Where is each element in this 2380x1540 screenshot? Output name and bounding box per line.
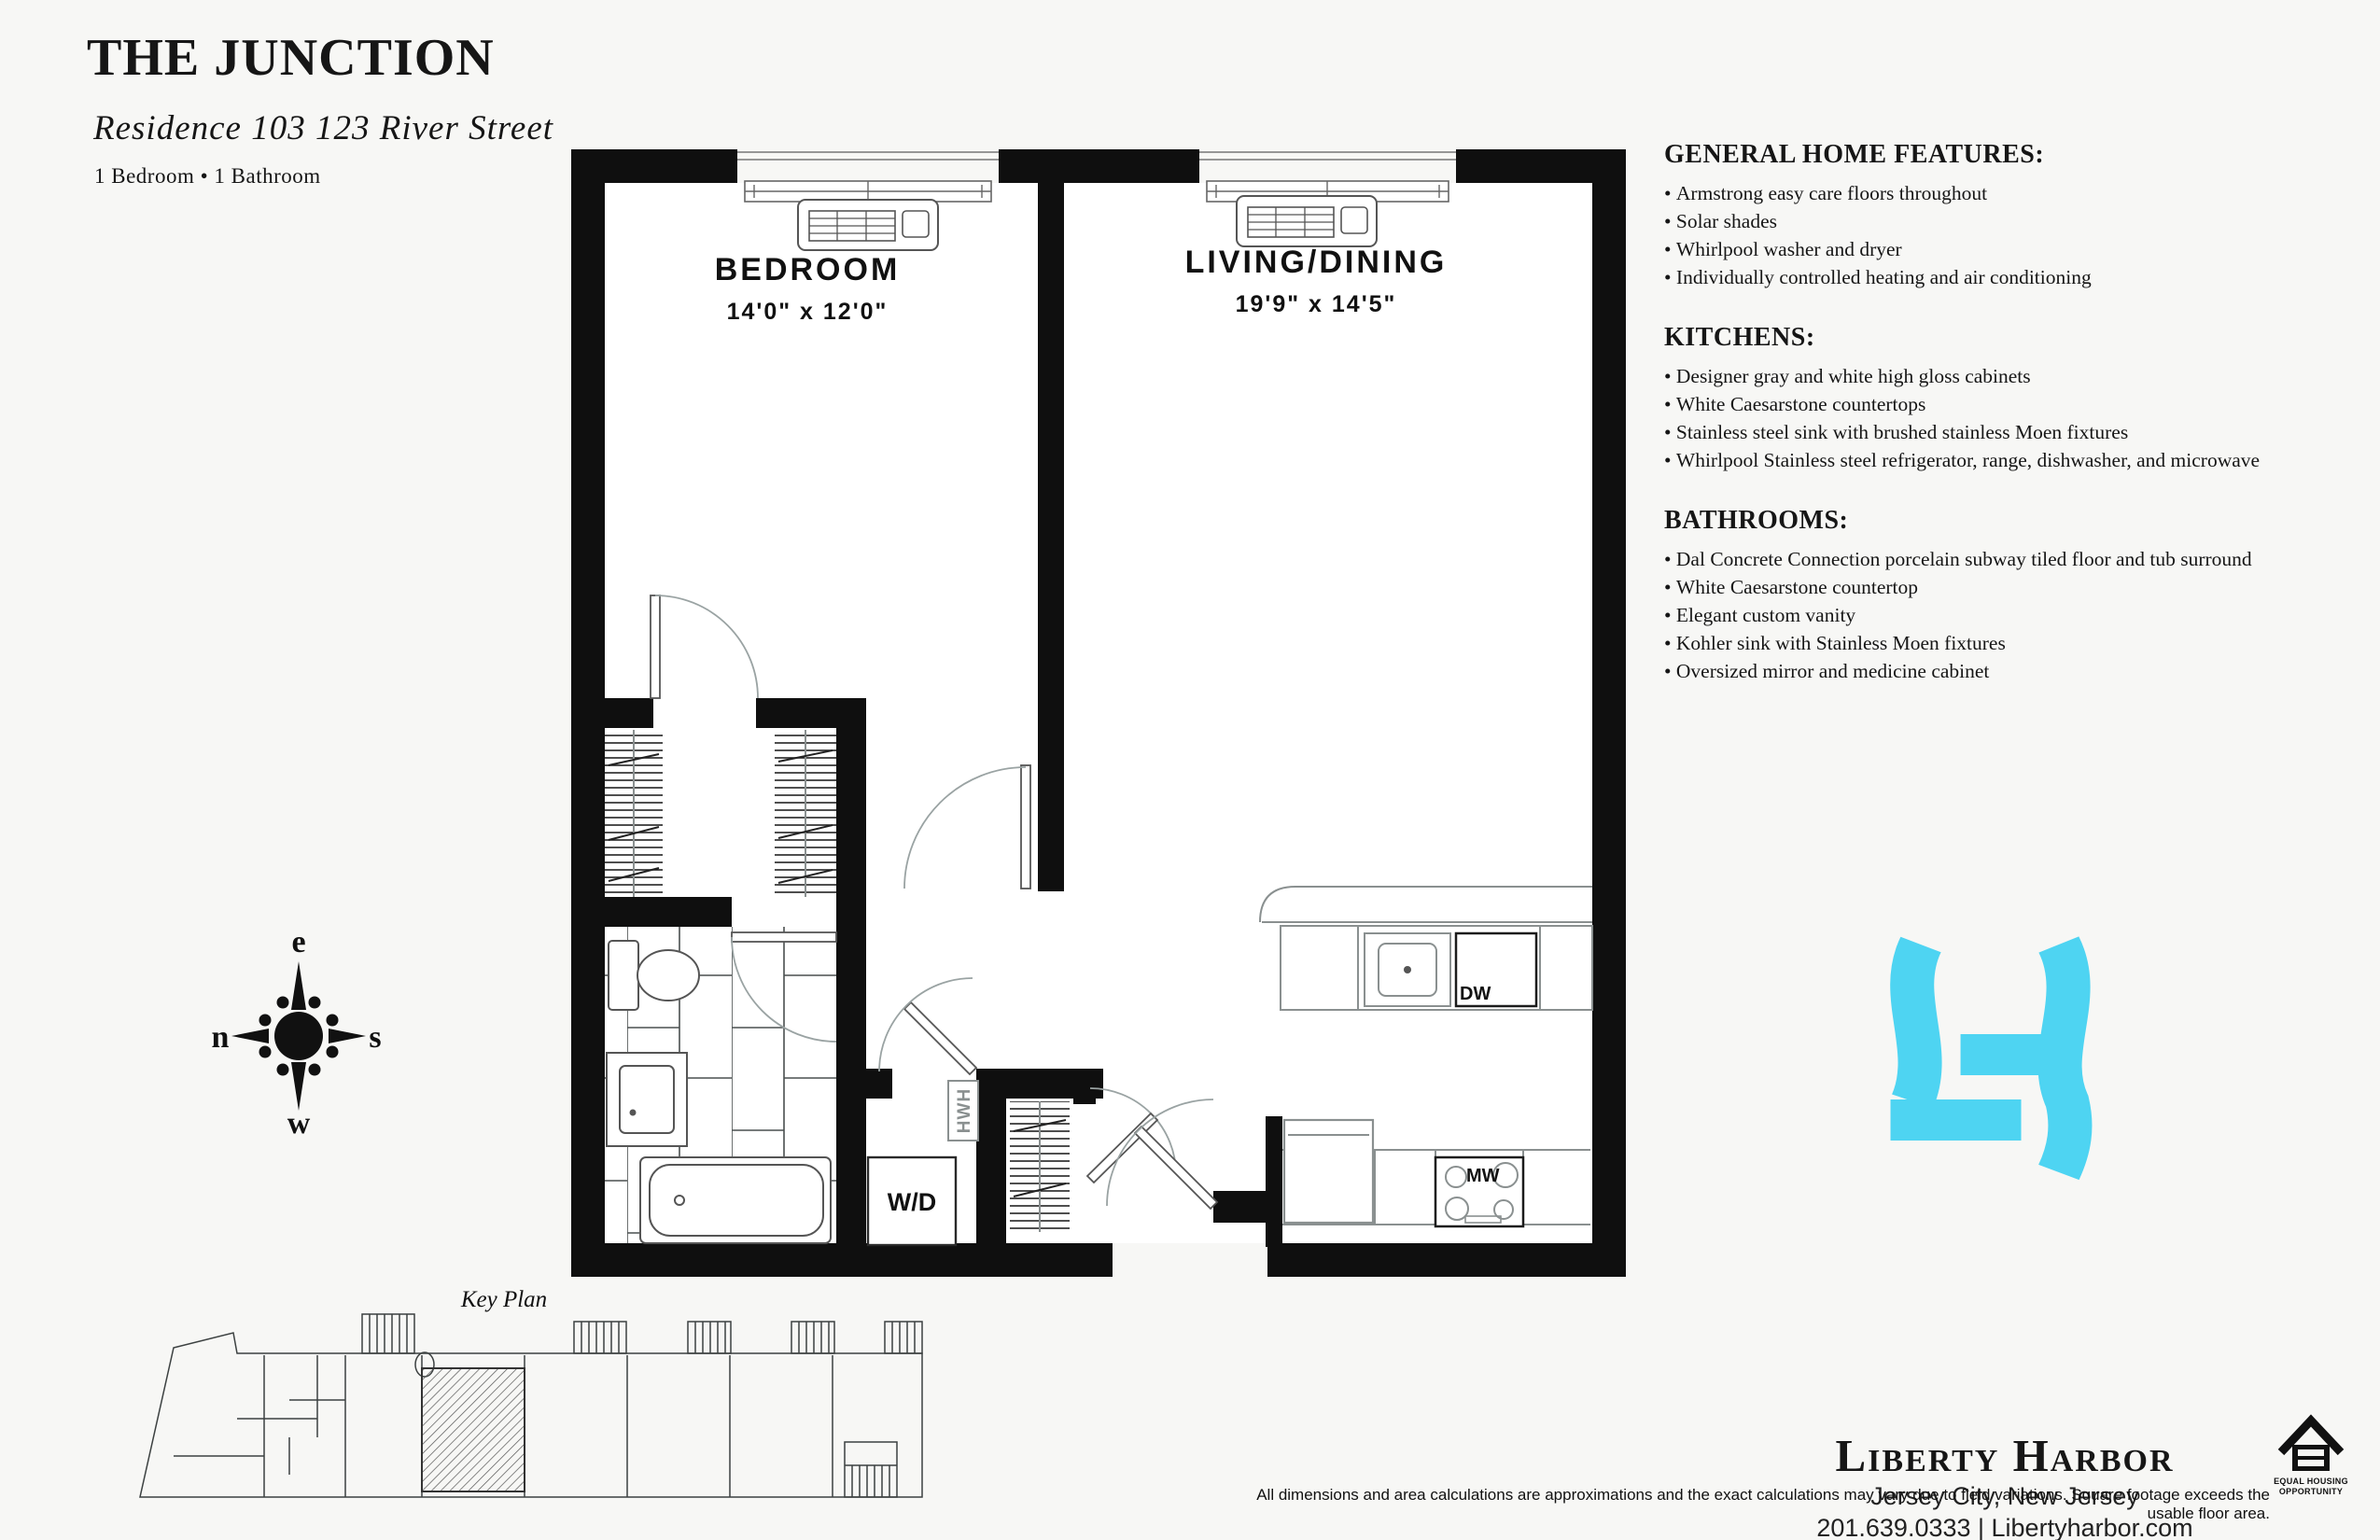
range: MW — [1435, 1157, 1523, 1226]
compass-s: s — [369, 1020, 381, 1055]
drawings-layer: HWH W/D DW — [0, 0, 2380, 1540]
vanity-sink — [607, 1053, 687, 1146]
key-plan-label: Key Plan — [460, 1287, 547, 1312]
dishwasher: DW — [1456, 933, 1536, 1006]
living-ptac-unit — [1237, 196, 1377, 246]
refrigerator — [1284, 1120, 1373, 1223]
compass-rose: e n s w — [212, 925, 382, 1141]
hwh-label: HWH — [955, 1088, 974, 1133]
mw-label: MW — [1466, 1166, 1500, 1186]
bedroom-window — [737, 152, 999, 202]
hot-water-heater: HWH — [948, 1081, 978, 1141]
equal-housing-logo: EQUAL HOUSING OPPORTUNITY — [2274, 1421, 2348, 1496]
bathtub — [640, 1157, 831, 1243]
floorplan-sheet: THE JUNCTION Residence 103 123 River Str… — [0, 0, 2380, 1540]
bedroom-dims: 14'0" x 12'0" — [727, 299, 889, 325]
eho-line1: EQUAL HOUSING — [2274, 1477, 2348, 1486]
living-window — [1199, 152, 1456, 202]
unit-floor-plan: HWH W/D DW — [571, 149, 1626, 1277]
bedroom-ptac-unit — [798, 200, 938, 250]
liberty-harbor-logo — [1891, 945, 2070, 1172]
keyplan-highlighted-unit — [422, 1368, 525, 1491]
compass-e: e — [291, 925, 305, 959]
living-dining-label: LIVING/DINING — [1185, 245, 1448, 280]
bedroom-label: BEDROOM — [715, 252, 901, 287]
coat-closet-shelving — [1010, 1101, 1070, 1232]
living-dining-dims: 19'9" x 14'5" — [1236, 291, 1397, 317]
compass-n: n — [212, 1020, 230, 1055]
dw-label: DW — [1460, 984, 1491, 1004]
compass-w: w — [287, 1106, 311, 1141]
wd-label: W/D — [888, 1188, 936, 1216]
eho-line2: OPPORTUNITY — [2279, 1487, 2343, 1496]
washer-dryer: W/D — [868, 1157, 956, 1245]
key-plan: Key Plan — [140, 1287, 922, 1497]
kitchen-sink — [1365, 933, 1450, 1006]
